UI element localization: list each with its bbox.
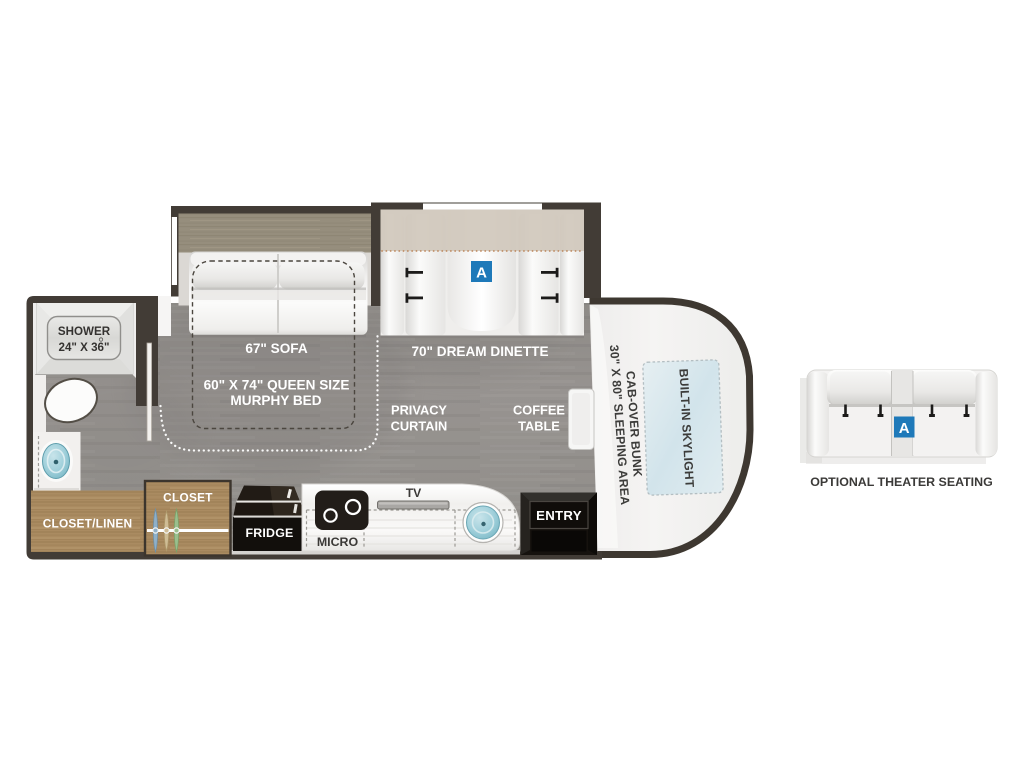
- svg-text:TV: TV: [406, 486, 422, 500]
- svg-text:CLOSET/LINEN: CLOSET/LINEN: [43, 517, 133, 531]
- svg-text:COFFEE: COFFEE: [513, 403, 565, 418]
- svg-text:CLOSET: CLOSET: [163, 491, 213, 505]
- svg-text:24" X 36": 24" X 36": [59, 341, 110, 354]
- svg-text:OPTIONAL THEATER SEATING: OPTIONAL THEATER SEATING: [810, 475, 992, 489]
- svg-text:ENTRY: ENTRY: [536, 508, 582, 523]
- svg-text:TABLE: TABLE: [518, 419, 560, 434]
- svg-text:A: A: [899, 420, 910, 437]
- svg-text:70" DREAM DINETTE: 70" DREAM DINETTE: [411, 344, 548, 359]
- svg-text:FRIDGE: FRIDGE: [245, 526, 293, 540]
- svg-text:SHOWER: SHOWER: [58, 325, 111, 338]
- svg-text:67" SOFA: 67" SOFA: [245, 341, 308, 356]
- svg-text:MURPHY BED: MURPHY BED: [230, 393, 321, 408]
- svg-text:CURTAIN: CURTAIN: [391, 419, 448, 434]
- svg-text:A: A: [476, 265, 487, 282]
- svg-text:60" X 74" QUEEN SIZE: 60" X 74" QUEEN SIZE: [204, 378, 350, 393]
- svg-text:MICRO: MICRO: [317, 535, 359, 549]
- svg-text:PRIVACY: PRIVACY: [391, 403, 447, 418]
